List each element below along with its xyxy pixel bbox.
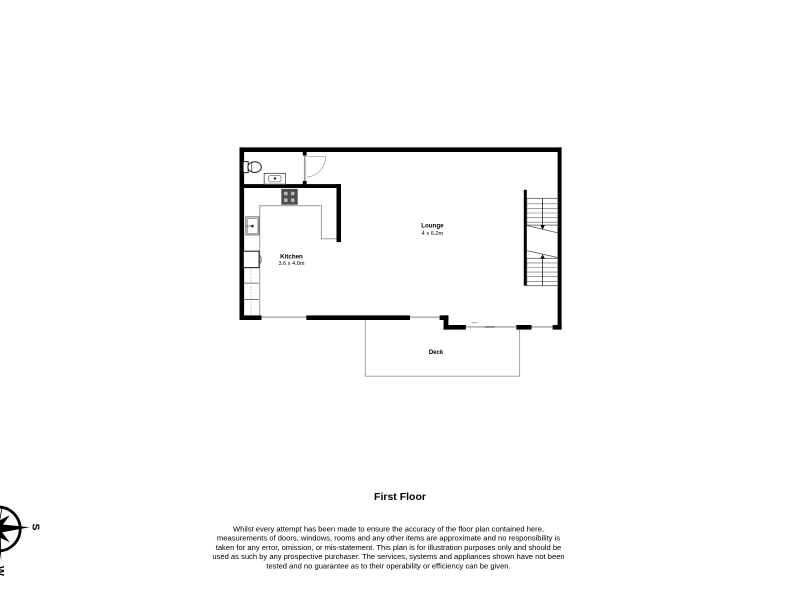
svg-text:taken for any error, omission,: taken for any error, omission, or mis-st… [216,543,562,552]
svg-text:used as such by any prospectiv: used as such by any prospective purchase… [212,552,564,561]
svg-text:4 x 6.2m: 4 x 6.2m [422,231,444,237]
svg-text:Kitchen: Kitchen [280,254,303,261]
svg-text:S: S [30,523,42,530]
svg-text:W: W [0,566,6,576]
svg-text:Whilst every attempt has been: Whilst every attempt has been made to en… [233,524,544,533]
svg-text:Deck: Deck [429,350,444,356]
svg-text:3.6 x 4.0m: 3.6 x 4.0m [278,261,304,267]
svg-text:Lounge: Lounge [421,222,444,229]
svg-text:tested and no guarantee as to: tested and no guarantee as to their oper… [266,561,510,570]
svg-text:First Floor: First Floor [374,491,426,503]
svg-text:measurements of doors, windows: measurements of doors, windows, rooms an… [217,534,560,543]
